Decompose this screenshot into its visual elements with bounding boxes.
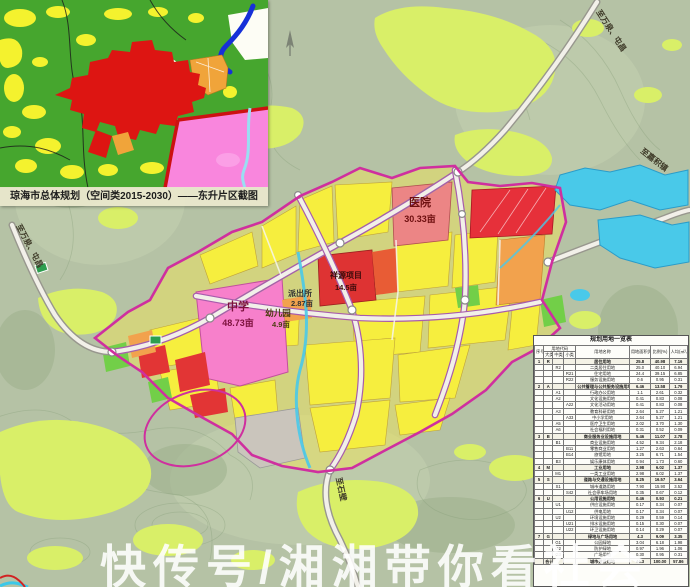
inset-caption: 琼海市总体规划（空间类2015-2030）——东升片区截图	[0, 187, 268, 206]
project-label: 祥源项目	[330, 270, 362, 280]
kindergarten-area-label: 4.9亩	[272, 319, 290, 329]
table-row: 合计城市建设用地44.3100.0057.86	[535, 558, 688, 564]
police-label: 派出所	[288, 288, 312, 298]
hospital-label: 医院	[409, 195, 431, 209]
col-mid: 中类	[553, 352, 564, 358]
col-name: 用地名称	[576, 346, 630, 359]
col-pct: 比例(%)	[651, 346, 669, 359]
north-arrow-icon	[286, 30, 294, 56]
project-area-label: 14.5亩	[335, 282, 358, 292]
table-row: R2二类居住用地25.040.106.94	[535, 364, 688, 370]
school-area-label: 48.73亩	[222, 317, 254, 328]
parcel-red-hatched	[470, 186, 556, 238]
table-header: 序号 用地代码 用地名称 用地面积(ha) 比例(%) 人均(㎡/人) 大类 中…	[535, 346, 688, 359]
col-seq: 序号	[535, 346, 544, 359]
col-area: 用地面积(ha)	[629, 346, 650, 359]
land-use-grid: 序号 用地代码 用地名称 用地面积(ha) 比例(%) 人均(㎡/人) 大类 中…	[534, 345, 688, 565]
inset-map-canvas	[0, 0, 268, 188]
col-percap: 人均(㎡/人)	[669, 346, 687, 359]
parcel-orange-east	[496, 235, 545, 305]
table-body: 1R居住用地25.840.987.16R2二类居住用地25.040.106.94…	[535, 358, 688, 564]
hospital-area-label: 30.33亩	[404, 213, 436, 224]
planning-map-screenshot: 医院 30.33亩 中学 48.73亩 幼儿园 4.9亩 派出所 2.87亩 祥…	[0, 0, 690, 587]
parcel-middle-school	[196, 278, 288, 386]
land-use-table: 规划用地一览表 序号 用地代码 用地名称 用地面积(ha) 比例(%) 人均(㎡…	[533, 335, 689, 587]
inset-overview-map: 琼海市总体规划（空间类2015-2030）——东升片区截图	[0, 0, 268, 206]
school-label: 中学	[227, 299, 249, 313]
kindergarten-label: 幼儿园	[265, 308, 291, 318]
police-area-label: 2.87亩	[291, 298, 314, 308]
table-title: 规划用地一览表	[534, 336, 688, 345]
road-sign-icon	[150, 336, 161, 344]
table-row: S1城市道路用地7.9015.903.52	[535, 483, 688, 489]
inset-pink-zone	[165, 108, 268, 188]
col-big: 大类	[544, 352, 553, 358]
